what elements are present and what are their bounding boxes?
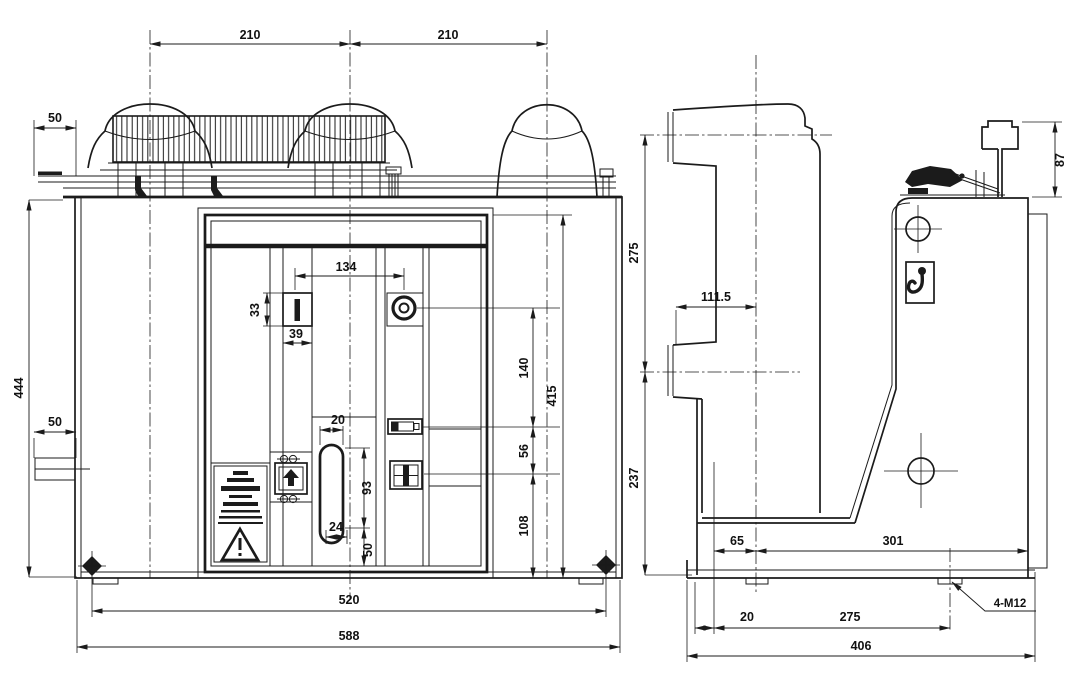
mounting-feet	[78, 550, 620, 584]
dim-50-bracket: 50	[48, 415, 62, 429]
dim-210-left: 210	[240, 28, 261, 42]
dim-520: 520	[339, 593, 360, 607]
dim-65: 65	[730, 534, 744, 548]
side-dimensions: 275 237 111.5 87 65 301 20 275 406	[627, 122, 1067, 662]
dim-415: 415	[545, 386, 559, 407]
hook-icon	[908, 267, 926, 292]
hook-plate	[906, 262, 934, 303]
pole-column	[668, 104, 855, 575]
dim-20-base: 20	[740, 610, 754, 624]
interlock-bracket	[35, 458, 90, 480]
dim-108: 108	[517, 516, 531, 537]
rail-left-tab	[38, 172, 62, 176]
operation-counter	[388, 419, 422, 434]
dim-24: 24	[329, 520, 343, 534]
dim-33: 33	[248, 303, 262, 317]
warning-triangle-icon	[222, 529, 258, 560]
dim-444: 444	[12, 378, 26, 399]
engineering-drawing-sheet: 210 210 50 444 50 134	[0, 0, 1080, 693]
side-view: 275 237 111.5 87 65 301 20 275 406	[627, 55, 1067, 662]
label-4-m12: 4-M12	[994, 598, 1027, 610]
side-base	[687, 560, 1035, 584]
cradle-rail	[38, 167, 616, 196]
pole-supports	[100, 163, 397, 197]
latch-mechanism	[900, 166, 1005, 197]
rail-hook-left-icon	[135, 176, 147, 196]
lift-point-lower	[884, 433, 958, 508]
dim-275-arms: 275	[627, 243, 641, 264]
dim-56: 56	[517, 444, 531, 458]
dim-237: 237	[627, 468, 641, 489]
dim-210-right: 210	[438, 28, 459, 42]
nameplate	[214, 466, 267, 562]
leader-lines	[417, 215, 572, 474]
arrow-up-icon	[283, 469, 299, 486]
front-view: 210 210 50 444 50 134	[12, 28, 622, 653]
nameplate-text-lines	[218, 471, 263, 524]
dim-588: 588	[339, 629, 360, 643]
rail-hook-mid-icon	[211, 176, 223, 196]
dim-275-base: 275	[840, 610, 861, 624]
mechanism-box	[850, 198, 1047, 578]
dim-50-rail: 50	[48, 111, 62, 125]
open-button	[387, 293, 423, 326]
dim-134: 134	[336, 260, 357, 274]
vcb-dimensional-drawing: 210 210 50 444 50 134	[0, 0, 1080, 693]
lift-point-upper	[894, 205, 942, 253]
dim-111-5: 111.5	[701, 290, 731, 304]
close-button	[283, 293, 312, 326]
position-indicator	[390, 461, 422, 489]
dim-39: 39	[289, 327, 303, 341]
dim-406: 406	[851, 639, 872, 653]
dim-50-keyhole: 50	[361, 543, 375, 557]
dim-301: 301	[883, 534, 904, 548]
dim-87: 87	[1053, 153, 1067, 167]
dim-20-keyhole: 20	[331, 413, 345, 427]
energy-storage-indicator	[275, 455, 307, 502]
dim-93: 93	[360, 481, 374, 495]
dim-140: 140	[517, 358, 531, 379]
